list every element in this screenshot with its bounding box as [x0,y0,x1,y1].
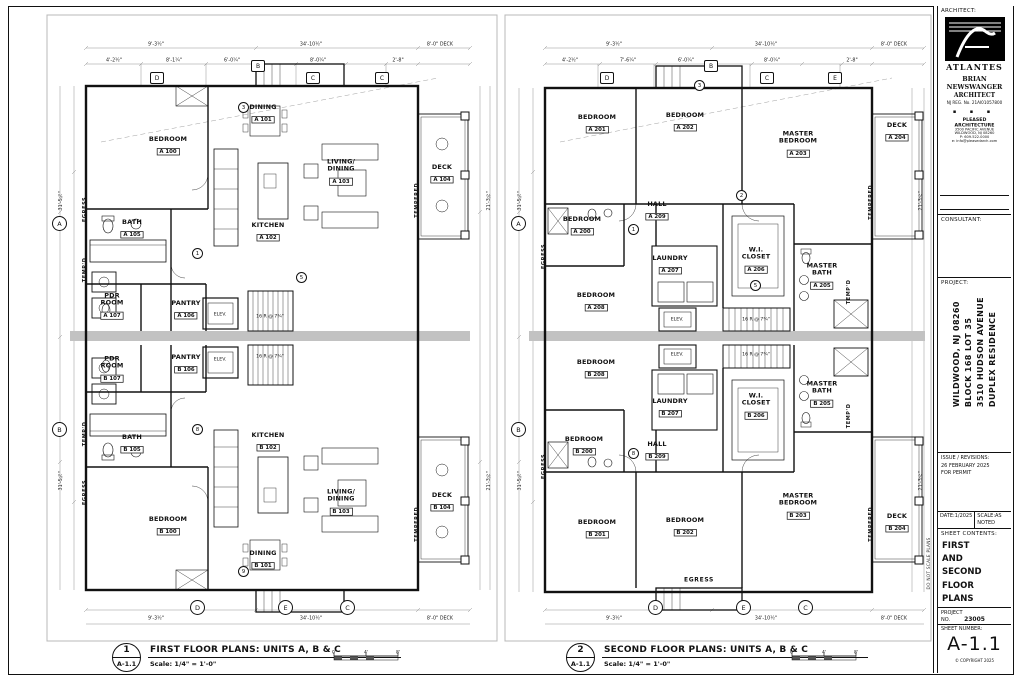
room-label: DININGA 101 [249,104,276,124]
room-label: LIVING/DININGA 103 [327,158,355,185]
dimension: 34'-10½" [299,41,322,46]
dimension: 4'-2½" [561,57,578,62]
grid-bubble: A [52,216,67,231]
room-label: MASTERBEDROOMB 203 [779,492,817,519]
architect-registration: NJ REG. No. 21AI01057800 [942,101,1008,106]
room-label: BEDROOMB 202 [666,517,704,537]
dimension: 34'-10½" [754,615,777,620]
room-label: BATHA 105 [120,219,143,239]
egress-label: EGRESS [541,244,547,269]
elevator-label: ELEV. [214,356,227,361]
room-label: PANTRYB 106 [171,354,200,374]
project-number-section: PROJECT NO.23005 [938,608,1011,625]
dimension: 6'-0¼" [223,57,240,62]
room-label: BEDROOMA 200 [563,216,601,236]
dimension: 21'-3½" [486,471,491,491]
second-floor-plan: BEDROOMA 201 BEDROOMA 202 MASTERBEDROOMA… [504,14,932,642]
grid-bubble: B [52,422,67,437]
logo-name: ATLANTES [938,62,1011,72]
graphic-scale-bar: 0' 4' 8' [330,650,402,666]
egress-label: EGRESS [82,197,88,222]
room-label: BEDROOMA 201 [578,114,616,134]
sheet-number-section: SHEET NUMBER: A-1.1 © COPYRIGHT 2025 [938,625,1011,669]
dimension: 31'-5¼" [517,471,522,491]
room-label: BEDROOMB 200 [565,436,603,456]
project-info: DUPLEX RESIDENCE 3510 HUDSON AVENUE BLOC… [938,287,1011,417]
dimension: 4'-2½" [105,57,122,62]
wall-type-tag: B [251,60,265,72]
sheet-number-label: SHEET NUMBER: [941,626,1008,632]
dimension: 8'-0" DECK [880,615,907,620]
wall-type-tag: C [760,72,774,84]
svg-text:4': 4' [364,650,368,656]
room-label: DECKB 204 [885,513,908,533]
room-label: W.I.CLOSETA 206 [742,246,771,273]
tempered-glass-label: TEMP'D [82,258,88,283]
tempered-label: TEMPERED [868,185,874,220]
drawing-sheet: BEDROOMA 100 DININGA 101 KITCHENA 102 LI… [0,0,1024,683]
door-tag: 2 [736,190,747,201]
stair-note: 16 R @ 7¾" [256,313,284,318]
wall-type-tag: C [375,72,389,84]
dimension: 8'-0" DECK [426,615,453,620]
consultant-section: CONSULTANT: [938,215,1011,278]
wall-type-tag: D [600,72,614,84]
dimension: 34'-10½" [754,41,777,46]
dimension: 8'-0¼" [763,57,780,62]
door-tag: 3 [694,80,705,91]
issue-label: ISSUE / REVISIONS: [941,455,1008,463]
divider-dots: ▪ ▪ ▪ [938,109,1011,115]
room-label: DECKB 104 [430,492,453,512]
architect-title: ARCHITECT [938,92,1011,99]
graphic-scale-bar: 0' 4' 8' [788,650,860,666]
room-label: LIVING/DININGB 103 [327,488,355,515]
tempered-label: TEMPERED [868,507,874,542]
door-tag: 5 [296,272,307,283]
sheet-number-value: A-1.1 [941,633,1008,655]
scale-label: SCALE: [977,513,995,519]
door-tag: 1 [628,224,639,235]
architect-name: BRIAN NEWSWANGER [938,75,1011,91]
do-not-scale-note: DO NOT SCALE PLANS [927,537,932,589]
room-label: BATHB 105 [120,434,143,454]
dimension: 31'-5¼" [517,191,522,211]
svg-text:8': 8' [854,650,858,656]
project-number-label: PROJECT NO. [941,610,963,623]
drawing-number: 2 [567,644,594,658]
party-wall-band [529,331,925,341]
tempered-label: TEMPERED [414,183,420,218]
dimension: 31'-5¼" [58,191,63,211]
sheet-contents: FIRST AND SECOND FLOOR PLANS [938,538,1011,612]
dimension: 2'-8" [846,57,859,62]
dimension: 9'-3½" [605,615,622,620]
dimension: 21'-3½" [486,191,491,211]
architect-logo [945,17,1005,61]
architect-label: ARCHITECT: [938,6,1011,15]
tempered-glass-label: TEMP'D [82,422,88,447]
room-label: DECKA 204 [885,122,908,142]
room-label: LAUNDRYA 207 [652,255,687,275]
dimension: 7'-6¼" [619,57,636,62]
architect-section: ARCHITECT: ATLANTES BRIAN NEWSWANGER ARC… [938,6,1011,215]
contents-section: DATE:1/2025 SCALE:AS NOTED SHEET CONTENT… [938,512,1011,608]
egress-label: EGRESS [541,454,547,479]
room-label: MASTERBATHB 205 [807,380,838,407]
svg-text:0': 0' [790,650,794,656]
room-label: LAUNDRYB 207 [652,398,687,418]
room-label: BEDROOMB 208 [577,359,615,379]
svg-text:0': 0' [332,650,336,656]
room-label: BEDROOMA 208 [577,292,615,312]
dimension: 9'-3½" [147,615,164,620]
dimension: 9'-3½" [147,41,164,46]
project-label: PROJECT: [938,278,1011,287]
room-label: KITCHENA 102 [252,222,285,242]
issue-section: ISSUE / REVISIONS: 26 FEBRUARY 2025 FOR … [938,453,1011,512]
dimension: 2'-8" [392,57,405,62]
drawing-tag: 1 A-1.1 [112,643,141,672]
party-wall-band [70,331,470,341]
dimension: 21'-3½" [918,191,923,211]
issue-purpose: FOR PERMIT [941,470,1008,478]
room-label: KITCHENB 102 [252,432,285,452]
room-label: MASTERBEDROOMA 203 [779,130,817,157]
dimension: 6'-0¼" [677,57,694,62]
consultant-label: CONSULTANT: [938,215,1011,224]
room-label: BEDROOMA 202 [666,112,704,132]
dimension: 8'-1¼" [165,57,182,62]
dimension: 8'-0" DECK [880,41,907,46]
egress-label: EGRESS [82,480,88,505]
grid-bubble: A [511,216,526,231]
project-section: PROJECT: DUPLEX RESIDENCE 3510 HUDSON AV… [938,278,1011,453]
date-value: 1/2025 [955,513,973,519]
room-label: HALLA 209 [645,201,668,221]
door-tag: 3 [238,102,249,113]
tempered-label: TEMPERED [414,507,420,542]
grid-bubble: E [736,600,751,615]
door-tag: 5 [750,280,761,291]
elevator-label: ELEV. [214,311,227,316]
room-label: PDRROOMB 107 [100,355,123,382]
door-tag: 1 [192,248,203,259]
grid-bubble: C [798,600,813,615]
wall-type-tag: E [828,72,842,84]
wall-type-tag: C [306,72,320,84]
stair-note: 16 R @ 7¾" [742,351,770,356]
room-label: BEDROOMA 100 [149,136,187,156]
egress-label: EGRESS [684,577,714,584]
second-floor-plan-drawing [504,14,932,642]
door-tag: 8 [192,424,203,435]
tempered-glass-label: TEMP'D [846,404,852,429]
room-label: DECKA 104 [430,164,453,184]
wall-type-tag: B [704,60,718,72]
drawing-tag: 2 A-1.1 [566,643,595,672]
dimension: 8'-0" DECK [426,41,453,46]
room-label: HALLB 209 [645,441,668,461]
svg-text:8': 8' [396,650,400,656]
elevator-label: ELEV. [671,316,684,321]
room-label: PDRROOMA 107 [100,292,123,319]
room-label: MASTERBATHA 205 [807,262,838,289]
room-label: BEDROOMB 100 [149,516,187,536]
grid-bubble: C [340,600,355,615]
title-block: ARCHITECT: ATLANTES BRIAN NEWSWANGER ARC… [933,6,1013,673]
copyright-note: © COPYRIGHT 2025 [943,658,1005,666]
drawing-number: 1 [113,644,140,658]
dimension: 31'-5¼" [58,471,63,491]
dimension: 34'-10½" [299,615,322,620]
grid-bubble: B [511,422,526,437]
door-tag: 9 [238,566,249,577]
sheet-contents-label: SHEET CONTENTS: [938,529,1011,538]
drawing-sheet-ref: A-1.1 [571,658,590,670]
dimension: 21'-3½" [918,471,923,491]
room-label: W.I.CLOSETB 206 [742,392,771,419]
tempered-glass-label: TEMP'D [846,280,852,305]
date-label: DATE: [940,513,955,519]
room-label: PANTRYA 106 [171,300,200,320]
first-floor-plan: BEDROOMA 100 DININGA 101 KITCHENA 102 LI… [46,14,498,642]
stair-note: 16 R @ 7¾" [256,353,284,358]
elevator-label: ELEV. [671,351,684,356]
dimension: 9'-3½" [605,41,622,46]
grid-bubble: D [648,600,663,615]
drawing-sheet-ref: A-1.1 [117,658,136,670]
dimension: 8'-0¼" [309,57,326,62]
room-label: DININGB 101 [249,550,276,570]
door-tag: 8 [628,448,639,459]
project-number-value: 23005 [964,616,985,623]
svg-text:4': 4' [822,650,826,656]
firm-info: PLEASED ARCHITECTURE 3500 PACIFIC AVENUE… [946,117,1003,144]
grid-bubble: E [278,600,293,615]
wall-type-tag: D [150,72,164,84]
grid-bubble: D [190,600,205,615]
stair-note: 16 R @ 7¾" [742,316,770,321]
room-label: BEDROOMB 201 [578,519,616,539]
issue-date: 26 FEBRUARY 2025 [941,463,1008,471]
